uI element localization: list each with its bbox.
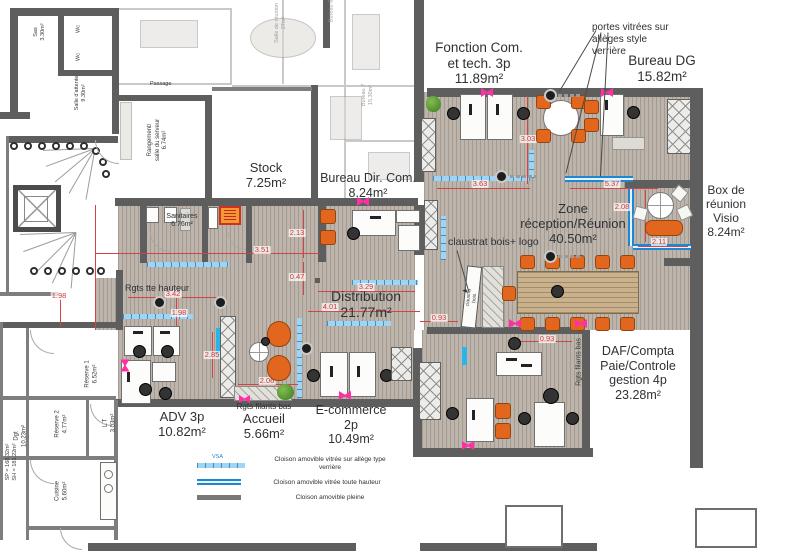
wall <box>58 8 64 72</box>
annotation-surfaces: SP = 168.32m² SH = 181.22m² <box>5 443 19 480</box>
column-marker <box>302 344 311 353</box>
annotation-rgts-filants-bas: Rgts filants bas <box>237 402 292 411</box>
annotation-sanitaires: Sanitaires 6.76m² <box>166 213 197 229</box>
room-label-reserve2: Réserve 2 4.77m² <box>55 410 70 437</box>
room-label-sas: Sas 3.30m² <box>33 23 47 40</box>
office-chair-icon <box>159 387 172 400</box>
office-chair-icon <box>139 383 152 396</box>
wall <box>88 543 356 551</box>
room-label-daf: DAF/Compta Paie/Controle gestion 4p 23.2… <box>600 344 676 402</box>
wall <box>0 322 3 540</box>
monitor-icon <box>357 366 360 377</box>
room-label-adv: ADV 3p 10.82m² <box>158 409 206 439</box>
legend-label-pleine: Cloison amovible pleine <box>296 494 365 502</box>
sink-icon <box>104 484 113 493</box>
office-chair-icon <box>518 412 531 425</box>
desk <box>460 94 486 140</box>
stair-dot <box>58 267 66 275</box>
orange-chair-icon <box>620 317 635 331</box>
column-leader <box>558 94 580 97</box>
monitor-icon <box>133 331 143 334</box>
dimension-label: 0.93 <box>431 314 448 322</box>
orange-chair-icon <box>620 255 635 269</box>
annex-room <box>695 508 757 548</box>
orange-chair-icon <box>520 255 535 269</box>
sink-icon <box>104 470 113 479</box>
stair-dot <box>30 267 38 275</box>
shelf-cabinet <box>421 118 436 172</box>
room-label-lt: L.T 3.03m² <box>103 414 118 433</box>
dimension-label: 1.98 <box>51 292 68 300</box>
partition-full-height <box>565 176 633 182</box>
wall-faint <box>118 8 232 10</box>
stair-dot <box>44 267 52 275</box>
column-marker <box>155 298 164 307</box>
room-label-bureau7: Bureau 7 15.30m² <box>361 84 375 106</box>
dimension-line <box>437 188 530 189</box>
monitor-icon <box>160 331 170 334</box>
desk <box>349 352 376 397</box>
dimension-label: 3.03 <box>520 135 537 143</box>
wall <box>112 95 212 101</box>
wall <box>0 322 118 328</box>
office-chair-icon <box>508 337 521 350</box>
cabinet <box>398 225 420 251</box>
legend-swatch-toute-hauteur <box>197 479 241 485</box>
legend-label-allege: Cloison amovible vitrée sur allège type … <box>274 456 385 471</box>
orange-armchair-icon <box>267 355 291 381</box>
orange-chair-icon <box>595 317 610 331</box>
wall <box>0 292 58 296</box>
conference-table <box>517 271 639 314</box>
room-label-bureau-dir-com: Bureau Dir. Com. 8.24m² <box>320 171 416 200</box>
room-label-reserve1: Réserve 1 6.52m² <box>85 360 100 387</box>
column-leader <box>558 255 582 258</box>
floor-plan: 3.03 3.63 5.37 2.08 2.11 2.13 3.51 0.47 … <box>0 0 800 552</box>
partition-allege <box>529 150 534 178</box>
wall-faint <box>344 0 346 86</box>
wall-faint <box>118 83 232 85</box>
stair-dot <box>66 142 74 150</box>
shelf-cabinet <box>667 99 691 154</box>
orange-chair-icon <box>320 209 336 224</box>
wall <box>664 258 694 266</box>
room-label-salle-reunion: Salle de réunion 27m² <box>274 3 288 43</box>
dimension-label: 0.47 <box>289 273 306 281</box>
room-label-fonction-com: Fonction Com. et tech. 3p 11.89m² <box>435 40 523 87</box>
wc-fixture <box>146 207 159 223</box>
monitor-icon <box>521 364 532 367</box>
column-marker <box>216 298 225 307</box>
plant-icon <box>277 384 294 400</box>
office-chair-icon <box>627 106 640 119</box>
office-chair-icon <box>133 345 146 358</box>
dimension-label: 2.13 <box>289 229 306 237</box>
legend-swatch-allege <box>197 463 245 468</box>
stair-dot <box>102 170 110 178</box>
dimension-label: 0.93 <box>539 335 556 343</box>
desk <box>496 352 542 376</box>
shelf-cabinet <box>391 347 412 381</box>
door-arc <box>60 528 82 550</box>
partition-allege <box>441 216 446 260</box>
office-chair-icon <box>307 369 320 382</box>
dimension-label: 3.63 <box>472 180 489 188</box>
office-chair-icon <box>161 345 174 358</box>
sofa-icon <box>645 220 683 236</box>
desk <box>352 14 380 70</box>
desk <box>320 352 348 397</box>
wall <box>10 8 18 118</box>
legend-swatch-pleine <box>197 495 241 500</box>
meeting-table <box>534 402 565 447</box>
room-label-distribution: Distribution 21.77m² <box>331 288 401 320</box>
monitor-icon <box>496 104 499 115</box>
room-label-accueil: Accueil 5.66m² <box>243 411 285 441</box>
wall <box>58 70 118 76</box>
desk <box>466 398 494 442</box>
room-label-bureau6: Bureau 6 <box>329 0 336 22</box>
wall <box>0 396 116 400</box>
desk <box>487 94 513 140</box>
room-label-salle-attente: Salle d'attente 9.30m² <box>74 76 88 111</box>
desk <box>396 210 420 223</box>
dimension-label: 1.98 <box>171 309 188 317</box>
column-marker <box>546 252 555 261</box>
wall <box>86 400 89 458</box>
door-arc <box>30 330 54 354</box>
technical-box-text <box>224 210 236 220</box>
wall <box>0 112 30 119</box>
stair-dot <box>38 142 46 150</box>
office-chair-icon <box>551 285 564 298</box>
shelf-cabinet <box>419 362 441 420</box>
wall <box>116 270 123 330</box>
annotation-portes-vitrees: portes vitrées sur allèges style verrièr… <box>592 22 669 58</box>
office-chair-icon <box>566 412 579 425</box>
dimension-line <box>95 253 320 254</box>
stair-dot <box>24 142 32 150</box>
wall <box>6 136 9 296</box>
room-label-box-visio: Box de réunion Visio 8.24m² <box>706 184 746 240</box>
office-chair-icon <box>347 227 360 240</box>
wall <box>413 448 593 457</box>
partition-allege <box>327 321 391 326</box>
dimension-line <box>638 246 688 247</box>
column-marker <box>546 91 555 100</box>
low-storage <box>482 266 504 328</box>
column-leader <box>510 175 536 178</box>
dimension-line <box>570 188 658 189</box>
wall <box>246 205 252 263</box>
room-label-wc2: Wc <box>76 53 83 61</box>
monitor-icon <box>506 358 517 361</box>
dimension-line <box>95 205 96 330</box>
stair-dot <box>72 267 80 275</box>
desk <box>152 362 176 382</box>
stair-dot <box>10 142 18 150</box>
annotation-rgts-tte-hauteur: Rgts tte hauteur <box>125 283 189 293</box>
room-label-cuisine: Cuisine 5.60m² <box>55 481 70 501</box>
dimension-label: 2.85 <box>204 351 221 359</box>
annotation-claustrat: claustrat bois+ logo <box>448 236 539 249</box>
orange-chair-icon <box>520 317 535 331</box>
office-chair-icon <box>447 107 460 120</box>
partition-full-height <box>462 347 467 365</box>
wall-faint <box>346 140 414 142</box>
elevator-cab <box>24 196 48 222</box>
annotation-arrow <box>559 30 596 91</box>
wall <box>625 180 695 188</box>
sideboard <box>612 137 645 150</box>
room-label-dgt: Dgt 10.23m² <box>14 425 29 447</box>
monitor-icon <box>472 410 475 420</box>
wall <box>427 327 584 334</box>
table <box>140 20 198 48</box>
wc-fixture <box>208 207 218 229</box>
plant-icon <box>426 96 441 112</box>
room-label-wc1: Wc <box>76 25 83 33</box>
monitor-icon <box>127 372 130 382</box>
orange-chair-icon <box>584 118 599 132</box>
dimension-label: 3.51 <box>254 246 271 254</box>
dimension-label: 5.37 <box>604 180 621 188</box>
desk <box>330 96 362 140</box>
side-table <box>261 337 270 346</box>
door-arc <box>30 460 54 484</box>
dimension-label: 2.11 <box>651 238 667 246</box>
room-label-rangement: Rangement/ salle du serveur 6.74m² <box>147 119 170 161</box>
orange-chair-icon <box>536 129 551 143</box>
round-table <box>647 192 674 219</box>
partition-allege <box>297 318 302 398</box>
wall <box>690 88 703 468</box>
wall <box>205 95 212 205</box>
orange-chair-icon <box>320 230 336 245</box>
room-label-ecommerce: E-commerce 2p 10.49m² <box>316 403 387 447</box>
shelf <box>120 102 132 160</box>
office-chair-icon <box>517 107 530 120</box>
office-chair-icon <box>543 388 559 404</box>
annotation-passage: Passage <box>150 81 171 88</box>
stair-dot <box>52 142 60 150</box>
wall <box>212 87 312 91</box>
partition-allege <box>147 262 229 267</box>
room-label-stock: Stock 7.25m² <box>246 160 286 190</box>
annex-room <box>505 505 563 548</box>
wall-faint <box>230 8 232 85</box>
monitor-icon <box>370 216 381 219</box>
monitor-icon <box>605 100 608 110</box>
orange-chair-icon <box>595 255 610 269</box>
monitor-icon <box>469 104 472 115</box>
orange-chair-icon <box>502 286 516 301</box>
stair-dot <box>97 267 105 275</box>
legend-label-toute-hauteur: Cloison amovible vitrée toute hauteur <box>273 479 380 487</box>
orange-chair-icon <box>545 317 560 331</box>
wall <box>311 85 318 200</box>
annotation-rgts-filants-bas-v: Rgts filants bas <box>576 338 585 386</box>
stair-dot <box>80 142 88 150</box>
office-chair-icon <box>446 407 459 420</box>
orange-chair-icon <box>495 403 511 419</box>
column-marker <box>497 172 506 181</box>
dimension-line <box>60 299 61 327</box>
shelf-cabinet <box>424 200 438 250</box>
orange-chair-icon <box>584 100 599 114</box>
wall <box>315 278 320 283</box>
stair-dot <box>86 267 94 275</box>
orange-armchair-icon <box>267 321 291 347</box>
legend-vsa-tag: VSA <box>212 454 223 461</box>
orange-chair-icon <box>495 423 511 439</box>
monitor-icon <box>330 366 333 377</box>
